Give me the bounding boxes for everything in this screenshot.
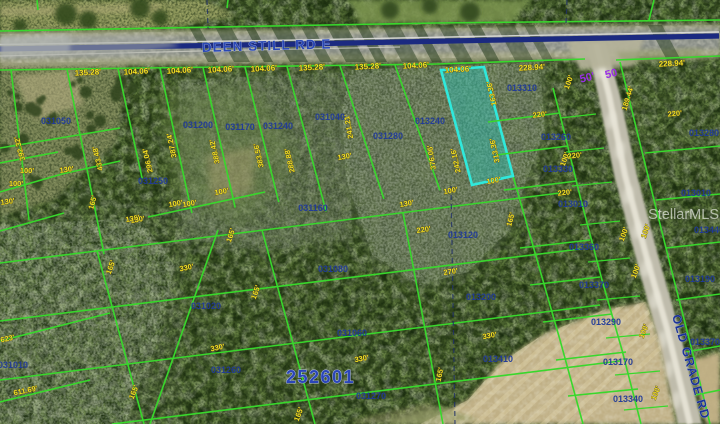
svg-text:031060: 031060	[337, 328, 367, 338]
svg-text:StellarMLS: StellarMLS	[648, 207, 719, 223]
svg-text:220': 220'	[557, 187, 572, 197]
svg-text:013260: 013260	[541, 132, 571, 142]
svg-text:100': 100'	[20, 166, 35, 175]
svg-text:013010: 013010	[558, 199, 588, 209]
svg-text:104.06': 104.06'	[123, 66, 150, 76]
svg-text:031250: 031250	[138, 176, 168, 186]
svg-text:031260: 031260	[211, 365, 241, 375]
svg-text:013290: 013290	[591, 317, 621, 327]
svg-text:228.94': 228.94'	[518, 62, 545, 72]
svg-text:228.94': 228.94'	[658, 58, 685, 68]
svg-text:135.28': 135.28'	[74, 67, 101, 77]
svg-text:013200: 013200	[466, 292, 496, 302]
svg-text:104.06': 104.06'	[250, 63, 277, 73]
svg-text:013370: 013370	[579, 280, 609, 290]
svg-text:013170: 013170	[603, 357, 633, 367]
svg-text:013340: 013340	[613, 394, 643, 404]
svg-text:104.06': 104.06'	[207, 64, 234, 74]
svg-text:031020: 031020	[191, 301, 221, 311]
svg-text:252601: 252601	[286, 367, 355, 387]
svg-text:013440: 013440	[694, 225, 720, 235]
svg-text:031050: 031050	[41, 116, 71, 126]
svg-text:031270: 031270	[356, 391, 386, 401]
svg-text:031170: 031170	[225, 122, 255, 132]
svg-text:220': 220'	[667, 108, 682, 118]
svg-text:104.06': 104.06'	[166, 65, 193, 75]
svg-text:031080: 031080	[318, 264, 348, 274]
svg-text:220': 220'	[532, 109, 547, 119]
svg-text:104.06': 104.06'	[402, 60, 429, 70]
svg-text:031010: 031010	[0, 360, 28, 370]
svg-text:031040: 031040	[315, 112, 345, 122]
svg-text:135.28': 135.28'	[298, 62, 325, 72]
svg-text:013120: 013120	[448, 230, 478, 240]
svg-text:135.28': 135.28'	[354, 61, 381, 71]
svg-text:013370: 013370	[690, 337, 720, 347]
svg-text:013240: 013240	[415, 116, 445, 126]
svg-text:013310: 013310	[507, 83, 537, 93]
svg-text:104.06': 104.06'	[444, 64, 471, 74]
svg-text:031160: 031160	[298, 203, 328, 213]
svg-text:013360: 013360	[569, 242, 599, 252]
svg-text:100': 100'	[9, 179, 24, 188]
svg-text:013280: 013280	[689, 128, 719, 138]
svg-text:031240: 031240	[263, 121, 293, 131]
svg-text:013330: 013330	[543, 164, 573, 174]
svg-text:031280: 031280	[373, 131, 403, 141]
svg-text:013410: 013410	[483, 354, 513, 364]
svg-text:031200: 031200	[183, 120, 213, 130]
svg-text:013190: 013190	[685, 274, 715, 284]
svg-text:013010: 013010	[681, 188, 711, 198]
